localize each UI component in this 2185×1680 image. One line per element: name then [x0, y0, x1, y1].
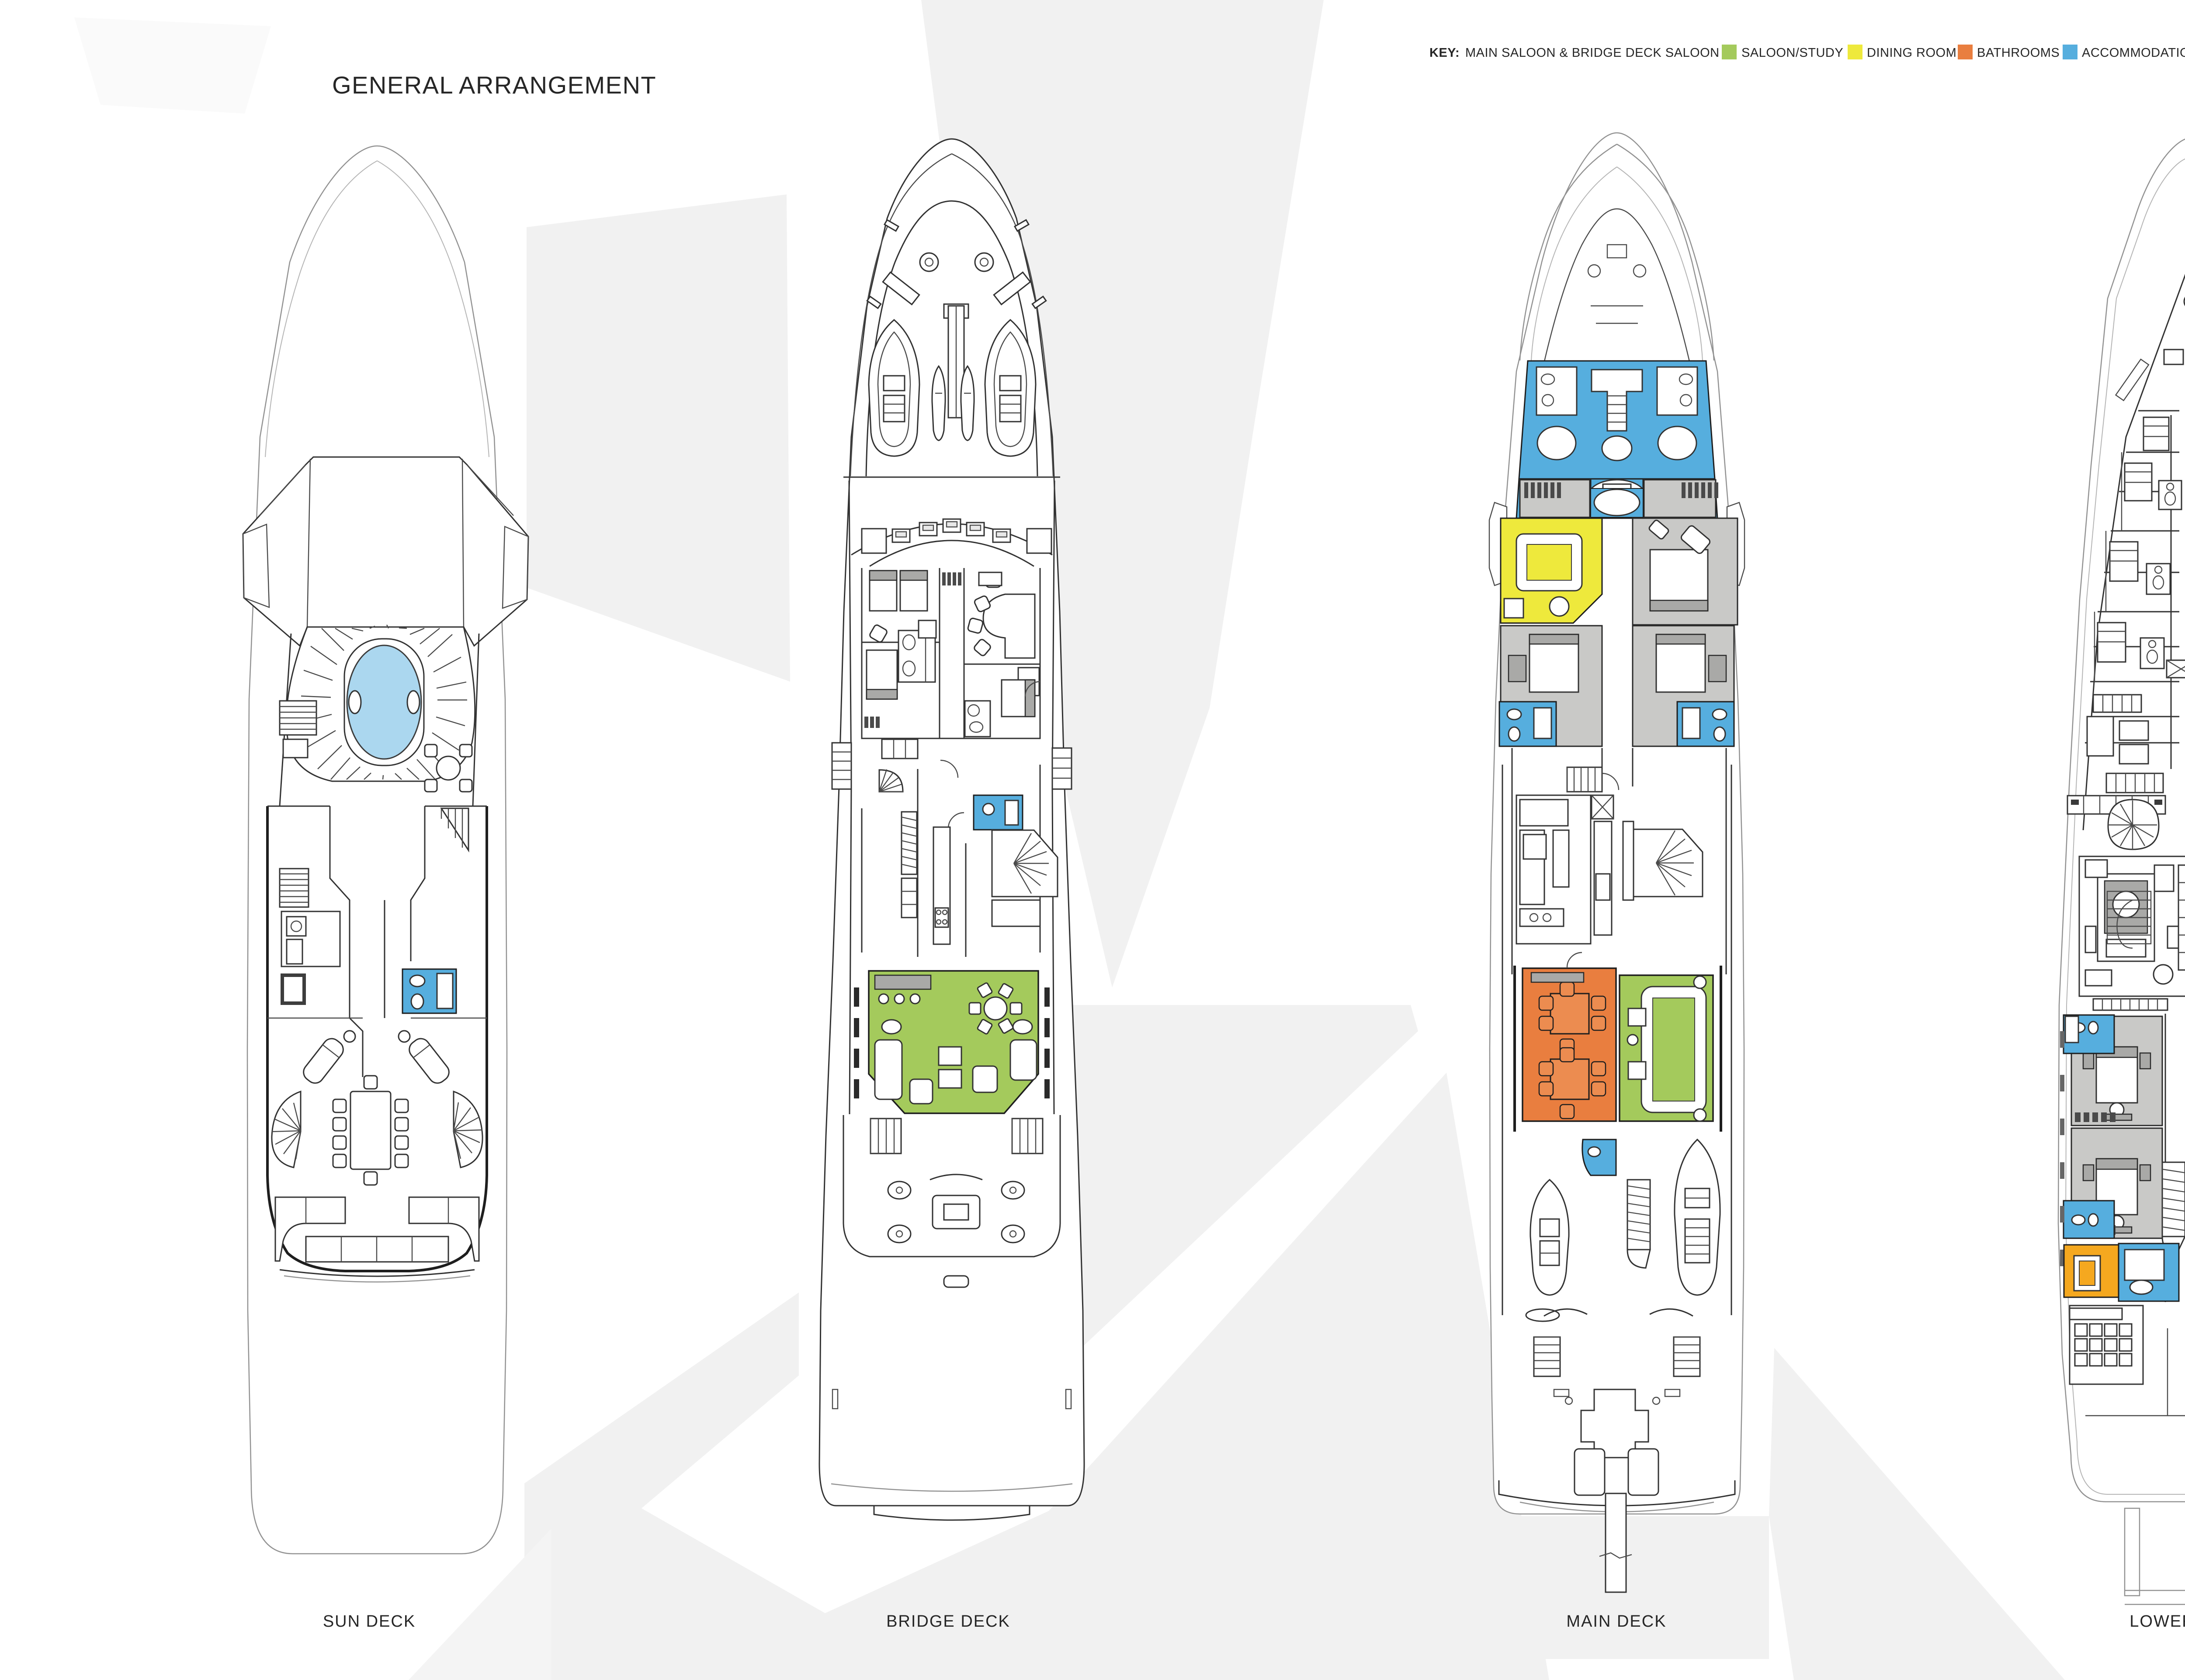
svg-text:BATHROOMS: BATHROOMS	[1977, 46, 2060, 60]
svg-text:DINING ROOM: DINING ROOM	[1867, 46, 1956, 60]
svg-text:ACCOMMODATION: ACCOMMODATION	[2082, 46, 2185, 60]
svg-text:BRIDGE DECK: BRIDGE DECK	[886, 1612, 1010, 1631]
svg-text:MAIN DECK: MAIN DECK	[1566, 1612, 1666, 1631]
svg-text:SALOON/STUDY: SALOON/STUDY	[1741, 46, 1843, 60]
svg-text:MAIN SALOON & BRIDGE DECK SALO: MAIN SALOON & BRIDGE DECK SALOON	[1465, 46, 1720, 60]
svg-text:GENERAL ARRANGEMENT: GENERAL ARRANGEMENT	[332, 71, 656, 99]
svg-text:KEY:: KEY:	[1429, 46, 1460, 60]
svg-text:SUN DECK: SUN DECK	[323, 1612, 416, 1631]
svg-text:LOWER DECK: LOWER DECK	[2130, 1612, 2185, 1631]
